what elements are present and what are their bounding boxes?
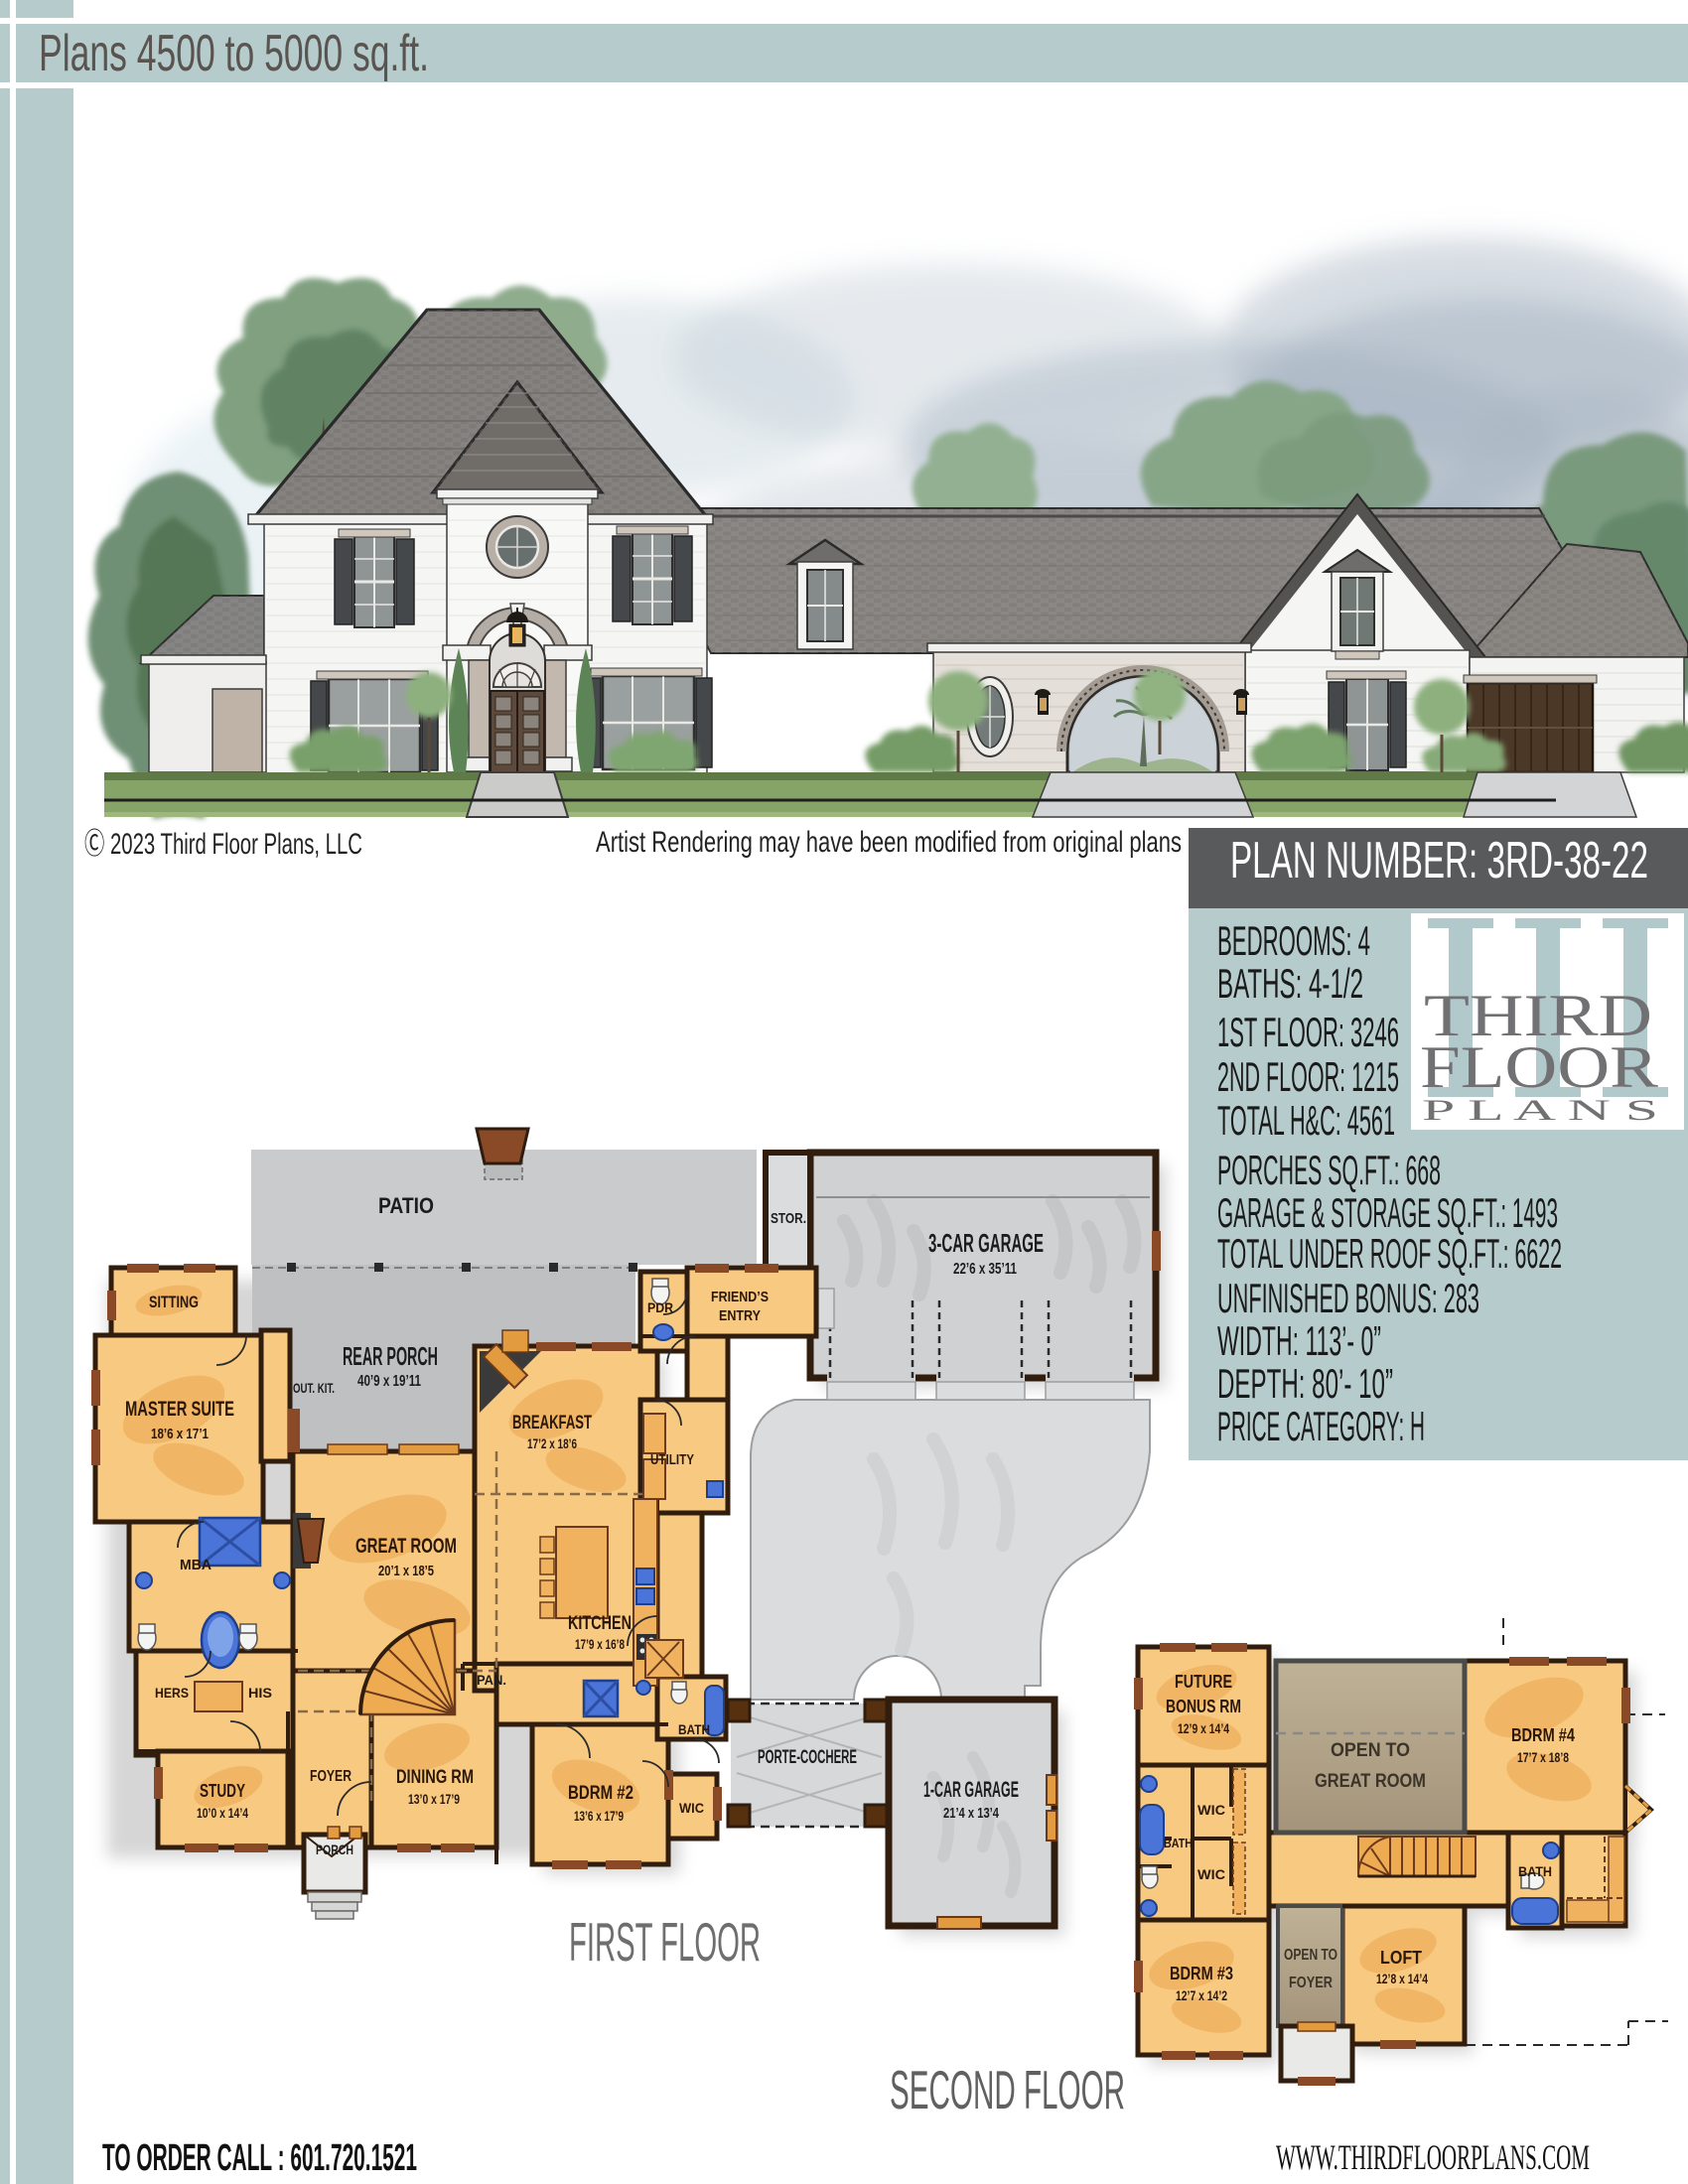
- svg-text:12’9 x 14’4: 12’9 x 14’4: [1178, 1720, 1229, 1736]
- svg-text:FOYER: FOYER: [1289, 1975, 1333, 1991]
- svg-text:22’6 x 35’11: 22’6 x 35’11: [953, 1261, 1017, 1278]
- svg-text:GARAGE & STORAGE SQ.FT.: 149: GARAGE & STORAGE SQ.FT.: 1493: [1217, 1189, 1558, 1236]
- svg-text:TO ORDER CALL : 601.720.1521: TO ORDER CALL : 601.720.1521: [102, 2137, 417, 2179]
- svg-text:PLAN NUMBER: 3RD-38-22: PLAN NUMBER: 3RD-38-22: [1230, 832, 1648, 889]
- svg-text:17’2 x 18’6: 17’2 x 18’6: [527, 1435, 577, 1451]
- svg-text:BDRM #4: BDRM #4: [1511, 1725, 1575, 1745]
- svg-text:WIC: WIC: [679, 1800, 704, 1816]
- svg-text:P L A N S: P L A N S: [1422, 1094, 1658, 1127]
- svg-text:SECOND FLOOR: SECOND FLOOR: [890, 2059, 1125, 2120]
- svg-text:10’0 x 14’4: 10’0 x 14’4: [197, 1805, 248, 1821]
- svg-text:PATIO: PATIO: [378, 1193, 434, 1218]
- svg-text:FIRST FLOOR: FIRST FLOOR: [569, 1911, 761, 1973]
- svg-text:MBA: MBA: [180, 1557, 211, 1573]
- svg-text:FOYER: FOYER: [310, 1768, 352, 1785]
- svg-text:18’6 x 17’1: 18’6 x 17’1: [151, 1426, 209, 1442]
- svg-text:GREAT ROOM: GREAT ROOM: [355, 1535, 457, 1558]
- svg-text:UNFINISHED BONUS: 283: UNFINISHED BONUS: 283: [1217, 1275, 1479, 1321]
- svg-text:BDRM #3: BDRM #3: [1170, 1964, 1233, 1983]
- svg-text:OPEN TO: OPEN TO: [1331, 1740, 1410, 1761]
- svg-text:PDR: PDR: [647, 1299, 673, 1315]
- svg-text:20’1 x 18’5: 20’1 x 18’5: [378, 1563, 434, 1579]
- svg-text:PAN.: PAN.: [477, 1672, 506, 1688]
- svg-text:3-CAR GARAGE: 3-CAR GARAGE: [928, 1228, 1044, 1258]
- svg-text:PORCHES SQ.FT.: 668: PORCHES SQ.FT.: 668: [1217, 1147, 1441, 1193]
- svg-text:TOTAL UNDER ROOF SQ.FT.: 662: TOTAL UNDER ROOF SQ.FT.: 6622: [1217, 1230, 1562, 1277]
- svg-text:Plans 4500 to 5000 sq.ft.: Plans 4500 to 5000 sq.ft.: [39, 25, 429, 82]
- svg-text:LOFT: LOFT: [1380, 1948, 1422, 1968]
- svg-text:TOTAL H&C: 4561: TOTAL H&C: 4561: [1217, 1097, 1395, 1144]
- svg-text:REAR PORCH: REAR PORCH: [343, 1341, 438, 1371]
- svg-text:PORTE-COCHERE: PORTE-COCHERE: [758, 1747, 857, 1768]
- svg-text:21’4 x 13’4: 21’4 x 13’4: [943, 1805, 999, 1822]
- svg-text:BATH: BATH: [678, 1721, 710, 1737]
- svg-text:STOR.: STOR.: [771, 1210, 806, 1227]
- svg-text:FLOOR: FLOOR: [1420, 1034, 1658, 1100]
- svg-text:WIDTH: 113’- 0”: WIDTH: 113’- 0”: [1217, 1317, 1381, 1364]
- svg-text:HIS: HIS: [248, 1685, 272, 1701]
- svg-text:OPEN TO: OPEN TO: [1284, 1947, 1337, 1964]
- svg-text:13’0 x 17’9: 13’0 x 17’9: [408, 1791, 460, 1807]
- svg-text:17’7 x 18’8: 17’7 x 18’8: [1517, 1749, 1569, 1765]
- svg-text:2ND FLOOR: 1215: 2ND FLOOR: 1215: [1217, 1053, 1399, 1100]
- svg-text:1-CAR GARAGE: 1-CAR GARAGE: [923, 1777, 1019, 1802]
- svg-text:BATHS: 4-1/2: BATHS: 4-1/2: [1217, 960, 1363, 1007]
- svg-text:GREAT ROOM: GREAT ROOM: [1315, 1771, 1426, 1792]
- svg-text:BREAKFAST: BREAKFAST: [512, 1413, 592, 1433]
- svg-text:40’9 x 19’11: 40’9 x 19’11: [357, 1373, 421, 1390]
- svg-text:BDRM #2: BDRM #2: [568, 1783, 633, 1804]
- svg-text:WWW.THIRDFLOORPLANS.COM: WWW.THIRDFLOORPLANS.COM: [1276, 2137, 1590, 2177]
- svg-text:17’9 x 16’8: 17’9 x 16’8: [575, 1636, 625, 1652]
- svg-text:STUDY: STUDY: [200, 1781, 245, 1801]
- svg-text:DINING RM: DINING RM: [396, 1767, 474, 1788]
- svg-text:Ⓒ 2023 Third Floor Plans, LLC: Ⓒ 2023 Third Floor Plans, LLC: [84, 828, 362, 861]
- svg-text:OUT. KIT.: OUT. KIT.: [293, 1380, 335, 1396]
- svg-text:WIC: WIC: [1197, 1802, 1225, 1818]
- svg-text:FRIEND’S: FRIEND’S: [711, 1289, 769, 1305]
- svg-text:ENTRY: ENTRY: [719, 1307, 761, 1324]
- svg-text:BATH: BATH: [1518, 1863, 1552, 1879]
- svg-text:WIC: WIC: [1197, 1866, 1225, 1882]
- svg-text:MASTER SUITE: MASTER SUITE: [125, 1398, 234, 1421]
- svg-text:UTILITY: UTILITY: [650, 1451, 694, 1468]
- svg-text:13’6 x 17’9: 13’6 x 17’9: [574, 1808, 624, 1824]
- svg-text:BONUS RM: BONUS RM: [1166, 1697, 1241, 1716]
- svg-text:FUTURE: FUTURE: [1175, 1672, 1232, 1692]
- svg-text:Artist Rendering may have been: Artist Rendering may have been modified …: [596, 826, 1182, 859]
- svg-text:12’8 x 14’4: 12’8 x 14’4: [1376, 1971, 1428, 1986]
- svg-text:PRICE CATEGORY: H: PRICE CATEGORY: H: [1217, 1403, 1425, 1449]
- svg-text:SITTING: SITTING: [149, 1293, 199, 1311]
- svg-text:1ST FLOOR: 3246: 1ST FLOOR: 3246: [1217, 1009, 1399, 1055]
- svg-text:DEPTH: 80’- 10”: DEPTH: 80’- 10”: [1217, 1360, 1393, 1407]
- svg-text:HERS: HERS: [155, 1685, 189, 1701]
- svg-text:KITCHEN: KITCHEN: [568, 1613, 632, 1634]
- svg-text:BATH: BATH: [1164, 1836, 1193, 1850]
- svg-text:BEDROOMS: 4: BEDROOMS: 4: [1217, 917, 1370, 964]
- svg-text:12’7 x 14’2: 12’7 x 14’2: [1176, 1987, 1227, 2003]
